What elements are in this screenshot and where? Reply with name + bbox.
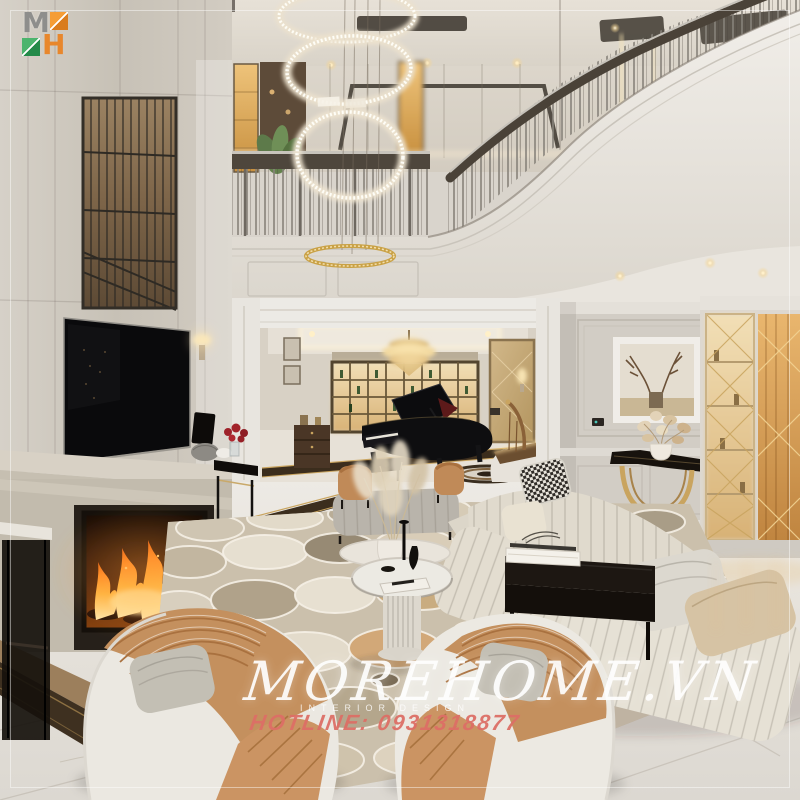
morehome-logo: M H — [22, 10, 72, 62]
logo-letter-h: H — [42, 28, 65, 61]
logo-green-square — [22, 38, 40, 56]
interior-render: M H MOREHOME.VN INTERIOR DESIGN HOTLINE:… — [0, 0, 800, 800]
hotline-text: HOTLINE: 0931318877 — [213, 710, 557, 736]
